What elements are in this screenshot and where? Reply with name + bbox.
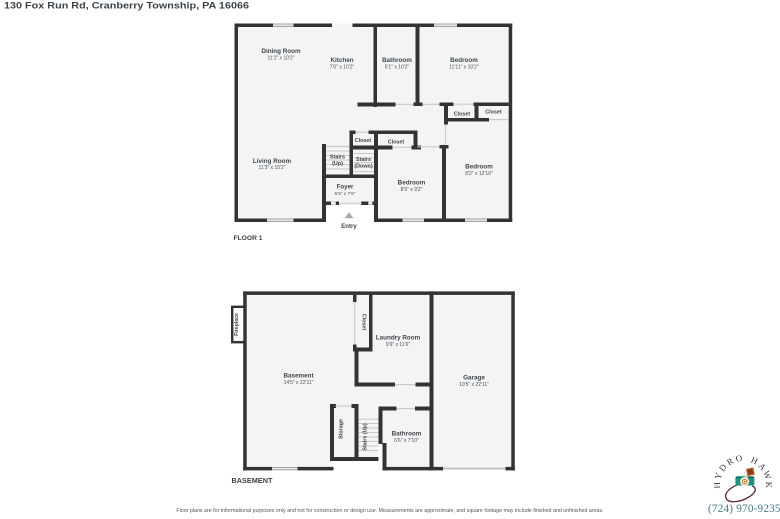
svg-text:Foyer: Foyer [337,184,354,191]
svg-text:(Up): (Up) [332,161,343,167]
svg-text:Entry: Entry [341,223,357,230]
svg-text:7'0" x 10'2": 7'0" x 10'2" [330,65,355,71]
svg-text:14'5" x 22'11": 14'5" x 22'11" [284,380,314,386]
svg-text:Bathroom: Bathroom [392,431,422,438]
svg-text:Stairs: Stairs [330,155,345,161]
svg-text:8'2" x 12'10": 8'2" x 12'10" [465,171,493,177]
svg-text:Kitchen: Kitchen [330,57,353,64]
svg-text:6'6" x 7'10": 6'6" x 7'10" [394,438,419,444]
svg-text:10'5" x 22'11": 10'5" x 22'11" [459,382,489,388]
svg-text:6'6" x 7'6": 6'6" x 7'6" [335,191,356,197]
svg-text:Bedroom: Bedroom [398,180,426,187]
svg-text:Stairs: Stairs [356,157,371,163]
svg-text:Garage: Garage [463,375,485,382]
svg-text:Bathroom: Bathroom [382,57,412,64]
svg-text:H: H [712,481,722,489]
svg-text:Fireplace: Fireplace [234,313,240,336]
svg-text:Storage: Storage [339,419,345,439]
svg-text:Closet: Closet [388,140,405,146]
svg-text:Floor plans are for informatio: Floor plans are for informational purpos… [176,508,603,514]
svg-text:Laundry Room: Laundry Room [376,335,421,342]
svg-text:Closet: Closet [355,138,372,144]
svg-text:Basement: Basement [283,373,314,380]
svg-text:Living Room: Living Room [253,158,292,165]
svg-text:130 Fox Run Rd, Cranberry Town: 130 Fox Run Rd, Cranberry Township, PA 1… [4,0,249,10]
svg-text:Closet: Closet [361,314,367,331]
svg-text:FLOOR 1: FLOOR 1 [234,235,263,242]
svg-text:Dining Room: Dining Room [261,48,301,55]
svg-text:(Down): (Down) [354,164,372,170]
svg-text:11'1" x 10'2": 11'1" x 10'2" [267,56,294,62]
svg-text:Closet: Closet [485,110,502,116]
svg-text:11'3" x 15'2": 11'3" x 15'2" [258,165,285,171]
svg-text:11'11" x 10'2": 11'11" x 10'2" [449,65,479,71]
svg-text:Closet: Closet [454,112,471,118]
svg-text:5'1" x 10'2": 5'1" x 10'2" [385,65,410,71]
svg-text:(724) 970-9235: (724) 970-9235 [708,503,780,515]
svg-text:Bedroom: Bedroom [465,164,493,171]
svg-text:Stairs (Up): Stairs (Up) [363,423,369,450]
svg-text:9'9" x 11'6": 9'9" x 11'6" [386,342,410,348]
svg-text:K: K [764,482,774,489]
svg-text:8'9" x 9'2": 8'9" x 9'2" [401,187,423,193]
svg-text:Bedroom: Bedroom [450,57,478,64]
svg-text:BASEMENT: BASEMENT [232,476,273,485]
